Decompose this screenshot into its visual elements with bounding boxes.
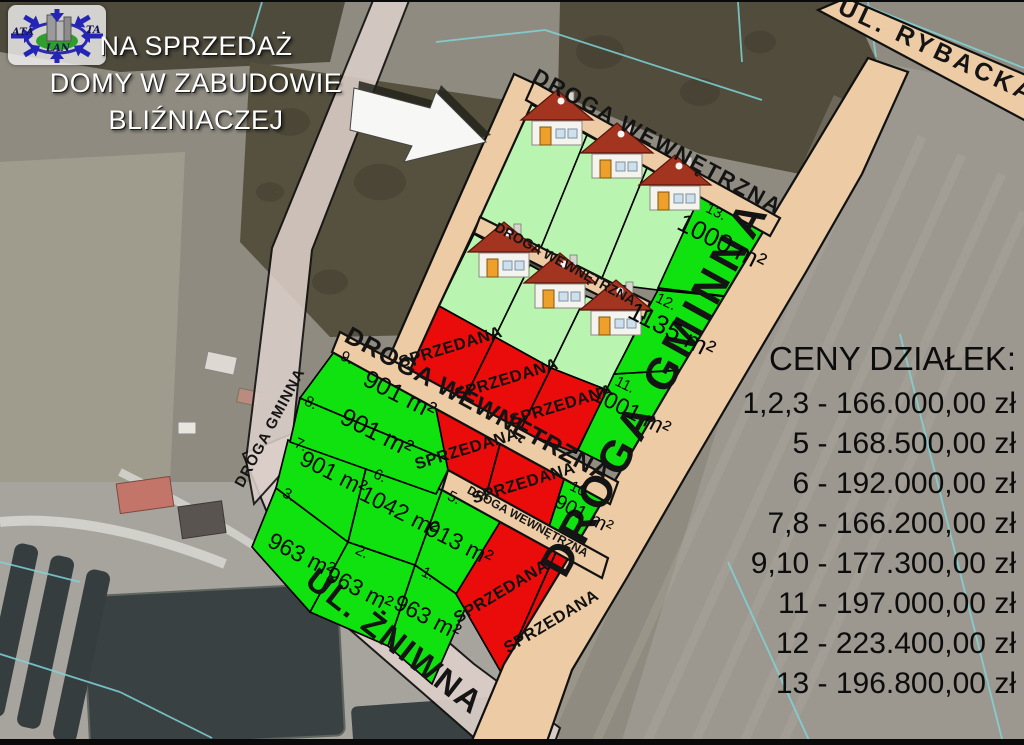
real-estate-flyer: UL. ŻNIWNADROGA GMINNAUL. RYBACKADROGA G… bbox=[0, 0, 1024, 745]
house-window bbox=[503, 261, 512, 270]
tree-blob bbox=[312, 269, 348, 294]
logo-arrow bbox=[23, 15, 40, 28]
price-line: 5 - 168.500,00 zł bbox=[742, 424, 1016, 464]
tree-blob bbox=[744, 31, 776, 53]
tree-blob bbox=[256, 182, 284, 202]
house-door bbox=[599, 317, 610, 335]
house-door bbox=[543, 290, 554, 308]
tree-blob bbox=[576, 35, 624, 69]
house-window bbox=[568, 129, 577, 138]
tree-blob bbox=[354, 164, 406, 200]
ad-line: NA SPRZEDAŻ bbox=[28, 28, 364, 65]
price-line: 11 - 197.000,00 zł bbox=[742, 584, 1016, 624]
house-door bbox=[600, 160, 611, 178]
house-window bbox=[616, 162, 625, 171]
price-line: 7,8 - 166.200,00 zł bbox=[742, 504, 1016, 544]
house-door bbox=[540, 127, 551, 145]
field-patch bbox=[0, 152, 185, 502]
house-door bbox=[658, 192, 669, 210]
house-window bbox=[686, 194, 695, 203]
building bbox=[178, 422, 196, 434]
price-line: 6 - 192.000,00 zł bbox=[742, 464, 1016, 504]
price-lines: 1,2,3 - 166.000,00 zł5 - 168.500,00 zł6 … bbox=[742, 384, 1016, 704]
house-window bbox=[615, 319, 624, 328]
house-window bbox=[559, 292, 568, 301]
ad-line: BLIŹNIACZEJ bbox=[28, 102, 364, 139]
house-window bbox=[515, 261, 524, 270]
house-window bbox=[571, 292, 580, 301]
price-list-title: CENY DZIAŁEK: bbox=[742, 338, 1016, 380]
tree-blob bbox=[680, 78, 720, 106]
ad-headline: NA SPRZEDAŻ DOMY W ZABUDOWIE BLIŹNIACZEJ bbox=[28, 28, 364, 139]
price-line: 9,10 - 177.300,00 zł bbox=[742, 544, 1016, 584]
building bbox=[178, 501, 226, 539]
price-list: CENY DZIAŁEK: 1,2,3 - 166.000,00 zł5 - 1… bbox=[742, 338, 1016, 704]
house-door bbox=[487, 259, 498, 277]
house-window bbox=[628, 162, 637, 171]
price-line: 13 - 196.800,00 zł bbox=[742, 664, 1016, 704]
house-window bbox=[556, 129, 565, 138]
house-window bbox=[674, 194, 683, 203]
ad-line: DOMY W ZABUDOWIE bbox=[28, 65, 364, 102]
price-line: 1,2,3 - 166.000,00 zł bbox=[742, 384, 1016, 424]
price-line: 12 - 223.400,00 zł bbox=[742, 624, 1016, 664]
